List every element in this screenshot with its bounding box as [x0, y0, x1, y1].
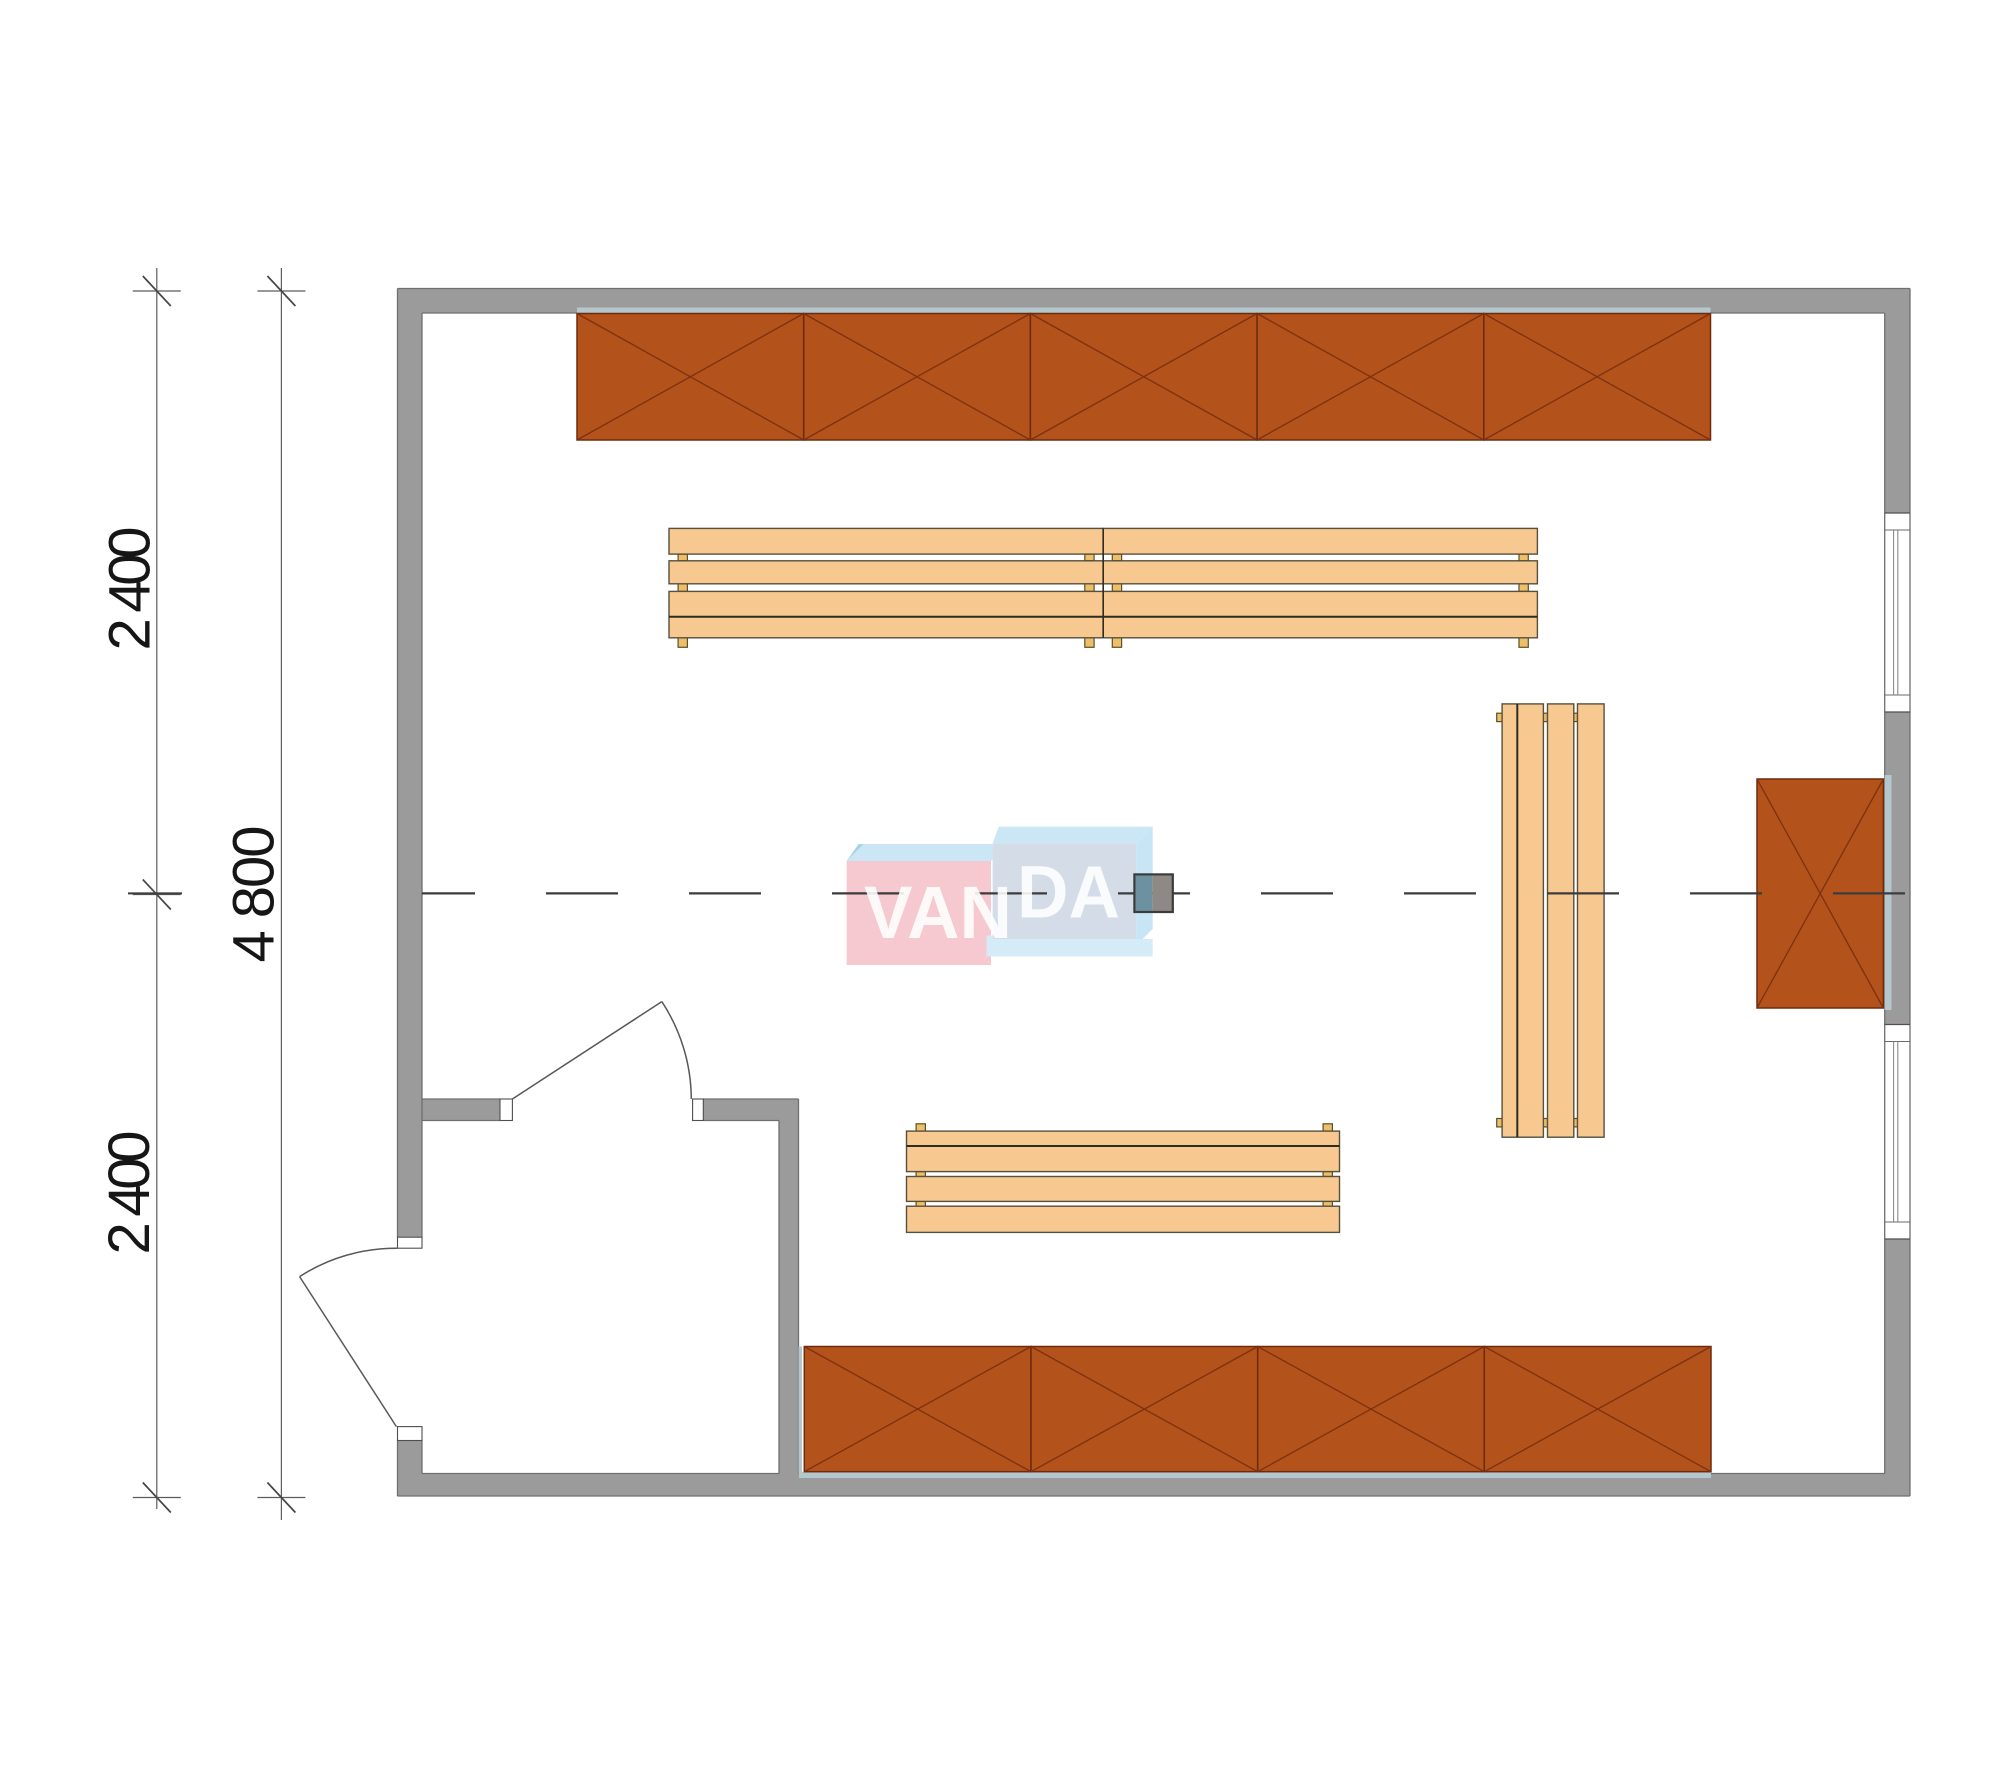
- svg-text:4 800: 4 800: [222, 826, 287, 963]
- svg-text:DA: DA: [1017, 851, 1120, 934]
- svg-text:2 400: 2 400: [98, 527, 163, 651]
- svg-text:2 400: 2 400: [97, 1131, 162, 1255]
- svg-text:VAN: VAN: [864, 871, 1012, 954]
